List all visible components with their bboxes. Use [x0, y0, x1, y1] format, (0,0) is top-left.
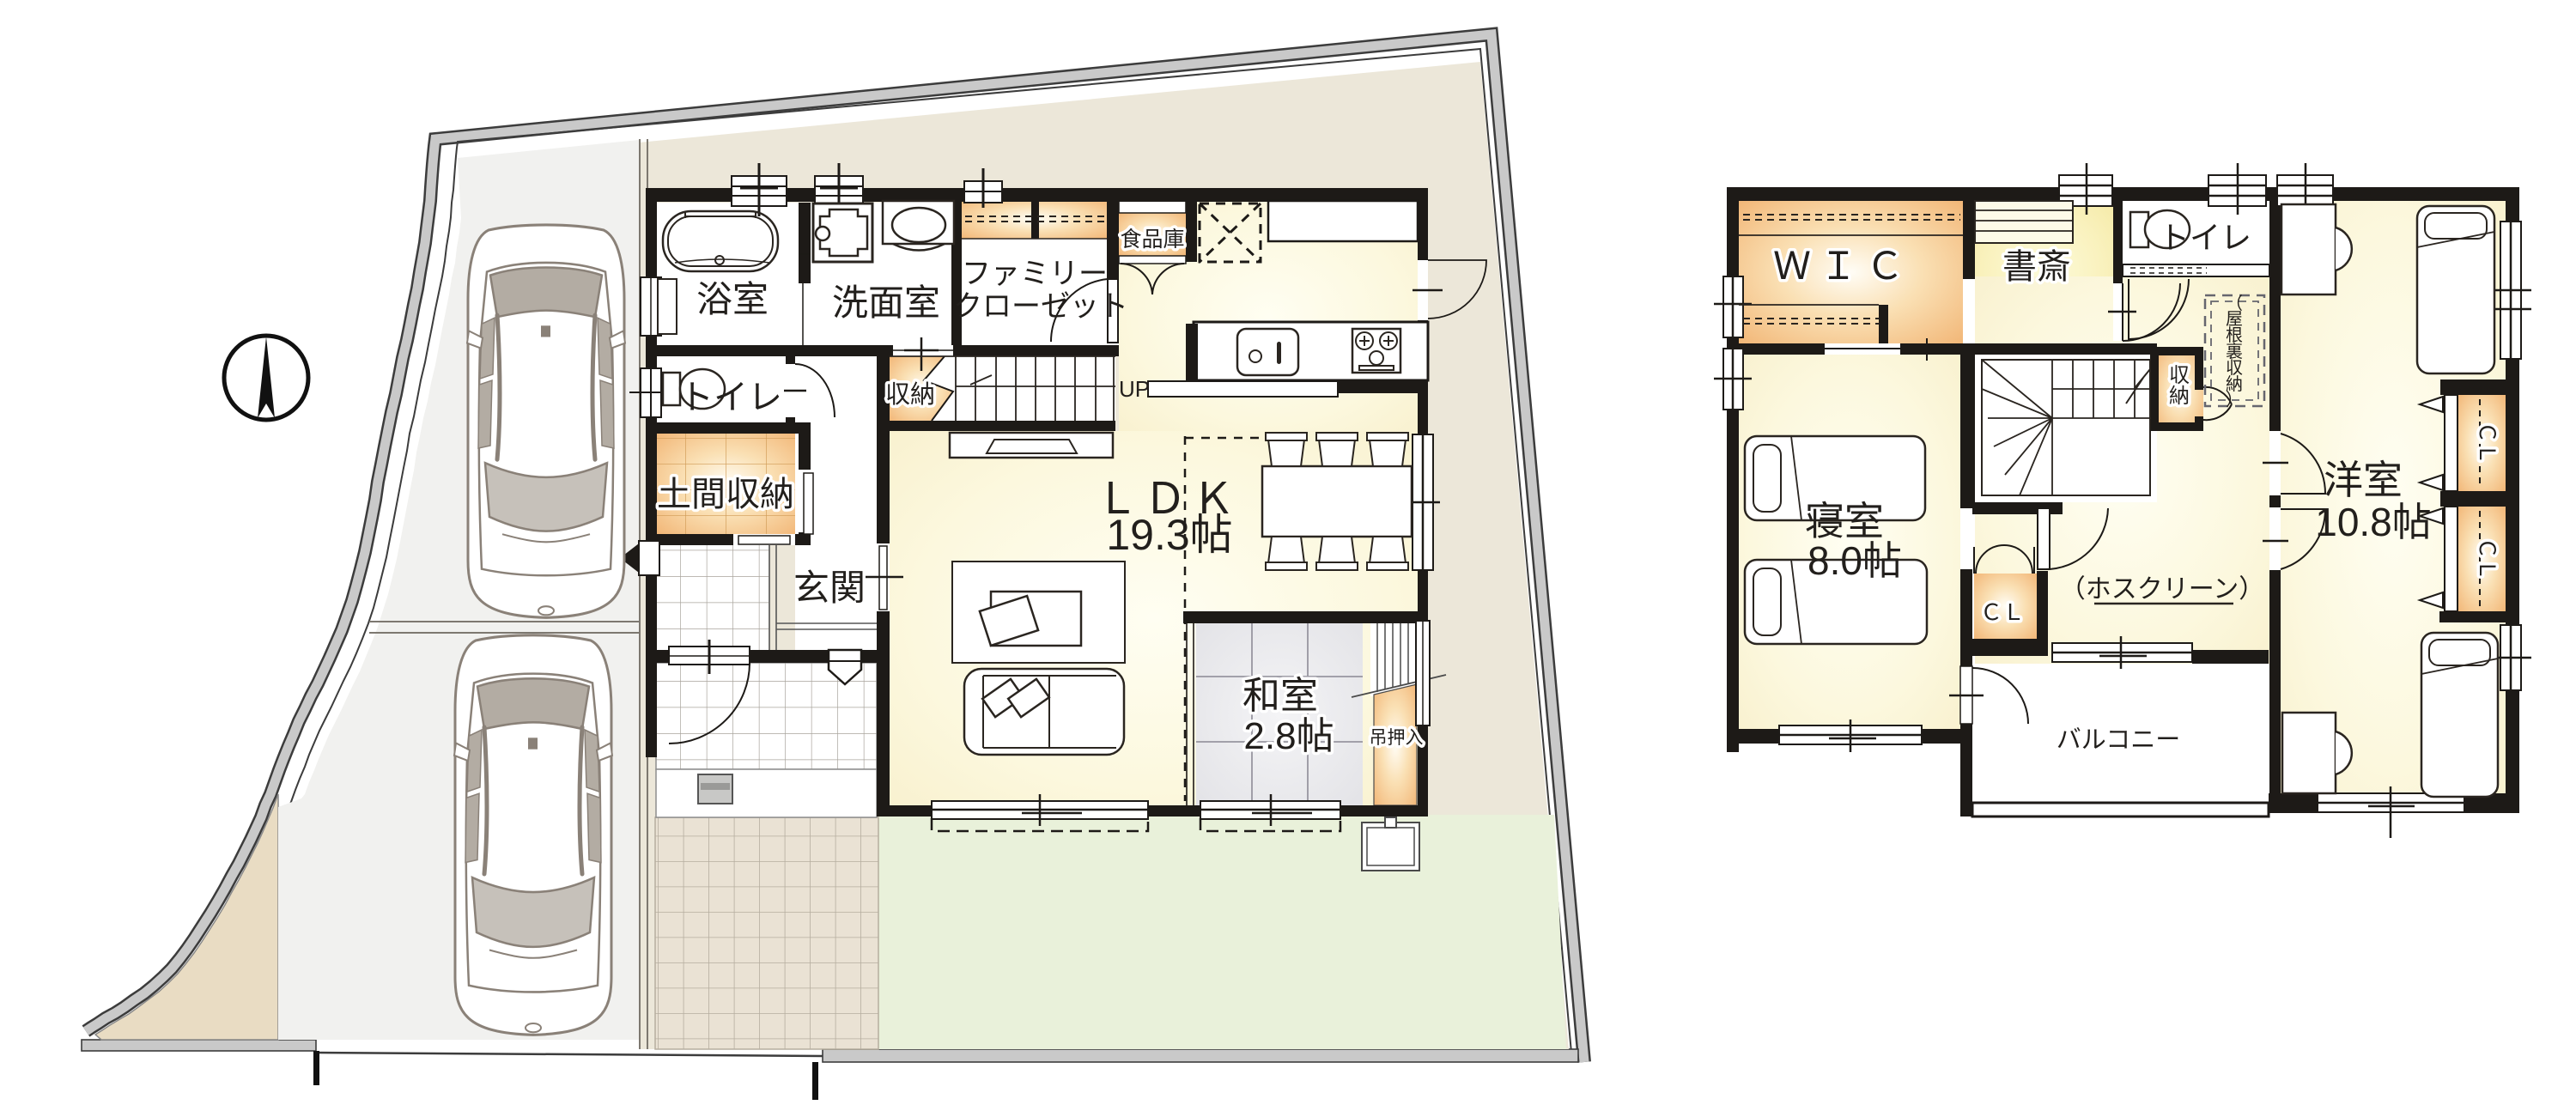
svg-text:（ホスクリーン）: （ホスクリーン） [2060, 575, 2265, 604]
svg-text:19.3帖: 19.3帖 [1106, 511, 1232, 559]
svg-text:8.0帖: 8.0帖 [1807, 538, 1902, 583]
svg-text:洋室: 洋室 [2324, 458, 2403, 502]
svg-text:ＣＬ: ＣＬ [1980, 599, 2025, 625]
svg-text:洗面室: 洗面室 [832, 282, 940, 323]
svg-text:（屋根裏収納）: （屋根裏収納） [2226, 294, 2243, 410]
svg-text:吊押入: 吊押入 [1370, 728, 1424, 748]
svg-text:ＷＩＣ: ＷＩＣ [1773, 246, 1912, 288]
svg-text:食品庫: 食品庫 [1120, 228, 1184, 252]
svg-text:書斎: 書斎 [2002, 248, 2071, 286]
svg-text:収納: 収納 [2169, 364, 2190, 408]
svg-text:トイレ: トイレ [679, 379, 782, 416]
svg-text:バルコニー: バルコニー [2057, 726, 2180, 754]
svg-text:ファミリー: ファミリー [962, 258, 1108, 290]
svg-text:クローゼット: クローゼット [953, 290, 1128, 323]
svg-text:10.8帖: 10.8帖 [2315, 500, 2432, 544]
svg-text:UP: UP [1119, 376, 1150, 402]
svg-text:玄関: 玄関 [793, 568, 866, 608]
svg-text:土間収納: 土間収納 [657, 476, 794, 513]
svg-text:和室: 和室 [1242, 675, 1318, 717]
svg-text:ＣＬ: ＣＬ [2475, 422, 2499, 464]
svg-text:2.8帖: 2.8帖 [1243, 715, 1334, 757]
svg-text:浴室: 浴室 [696, 279, 769, 319]
svg-text:ＣＬ: ＣＬ [2475, 537, 2499, 580]
svg-text:寝室: 寝室 [1805, 499, 1884, 543]
svg-text:トイレ: トイレ [2159, 220, 2251, 255]
svg-text:収納: 収納 [885, 380, 935, 409]
